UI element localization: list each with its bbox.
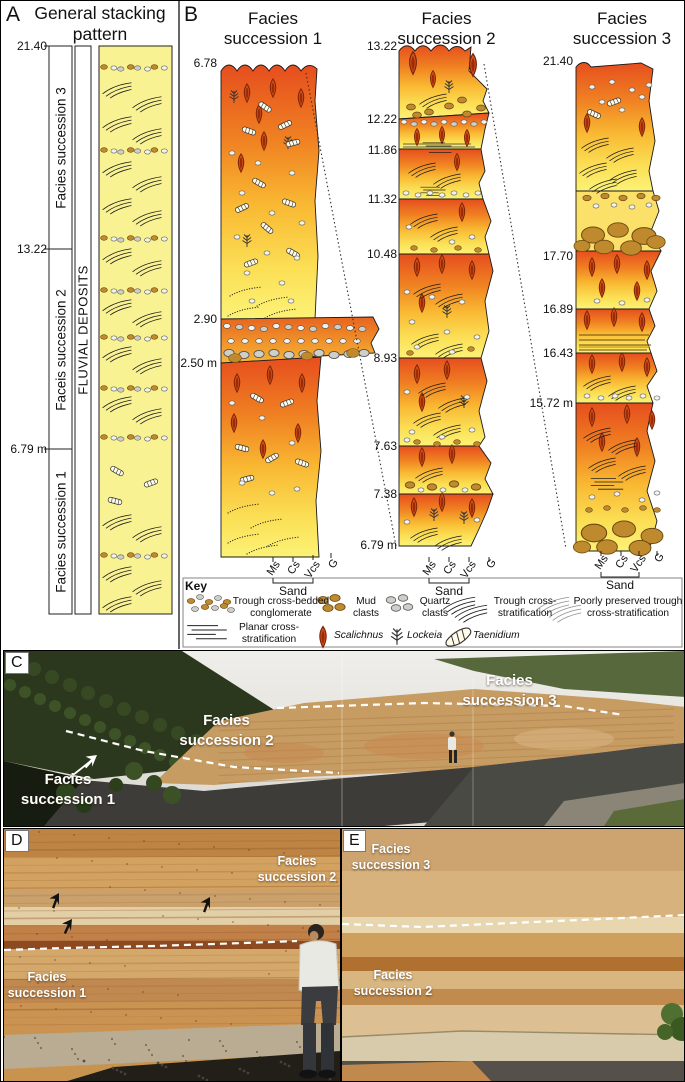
annotation-facies-succession-2: Facies succession 2 <box>164 711 289 750</box>
annotation-facies-succession-1: Facies succession 1 <box>4 969 90 1002</box>
depth-label: 21.40 <box>529 54 573 68</box>
key-taenidium-label: Taenidium <box>473 630 543 642</box>
annotation-facies-succession-2: Facies succession 2 <box>344 967 442 1000</box>
key-mud-clasts-label: Mud clasts <box>344 596 388 619</box>
succession-3-label: Facies succession 3 <box>54 87 69 209</box>
depth-label: 8.93 <box>353 351 397 365</box>
figure-root: A General stacking pattern 21.40 13.22 6… <box>0 0 685 1082</box>
depth-tick: 21.40 <box>3 39 47 53</box>
key-trough-label: Trough cross-stratification <box>487 596 563 619</box>
succession-2-label: Faceis succession 2 <box>54 289 69 411</box>
succession2-title: Facies succession 2 <box>389 9 504 49</box>
strat-diagram <box>1 1 685 649</box>
key-title: Key <box>185 579 207 593</box>
key-poor-trough-label: Poorly preserved trough cross-stratifica… <box>571 596 685 619</box>
succession1-title: Facies succession 1 <box>213 9 333 49</box>
depth-label: 6.79 m <box>353 538 397 552</box>
axis-group-sand: Sand <box>600 578 640 592</box>
panel-c-letter: C <box>5 652 29 674</box>
annotation-facies-succession-2: Facies succession 2 <box>254 853 340 886</box>
key-scalichnus-label: Scalichnus <box>334 630 404 642</box>
depth-label: 7.63 <box>353 439 397 453</box>
depth-label: 11.32 <box>353 192 397 206</box>
depth-label: 15.72 m <box>529 396 573 410</box>
depth-tick: 13.22 <box>3 242 47 256</box>
panel-d-letter: D <box>5 830 29 852</box>
depth-label: 7.38 <box>353 487 397 501</box>
key-planar-label: Planar cross-stratification <box>234 622 304 645</box>
panel-a-letter: A <box>6 3 20 27</box>
key-quartz-clasts-label: Quartz clasts <box>411 596 459 619</box>
depth-label: 2.90 <box>173 312 217 326</box>
succession-1-label: Facies succession 1 <box>54 471 69 593</box>
succession3-title: Facies succession 3 <box>563 9 681 49</box>
depth-label: 10.48 <box>353 247 397 261</box>
depth-label: 16.89 <box>529 302 573 316</box>
panel-e-photo: Facies succession 3 Facies succession 2 <box>341 828 685 1082</box>
depth-label: 11.86 <box>353 143 397 157</box>
annotation-facies-succession-3: Facies succession 3 <box>452 671 567 710</box>
panel-d-photo: Facies succession 2 Facies succession 1 <box>3 828 341 1082</box>
fluvial-deposits-label: FLUVIAL DEPOSITS <box>76 265 91 395</box>
depth-label: 16.43 <box>529 346 573 360</box>
depth-label: 13.22 <box>353 39 397 53</box>
key-lockeia-label: Lockeia <box>407 630 467 642</box>
panel-b-letter: B <box>184 3 198 27</box>
panel-e-letter: E <box>343 830 366 852</box>
depth-label: 6.78 <box>173 56 217 70</box>
depth-label: 17.70 <box>529 249 573 263</box>
annotation-facies-succession-1: Facies succession 1 <box>4 770 132 809</box>
depth-label: 2.50 m <box>173 356 217 370</box>
key-conglomerate-label: Trough cross-bedded conglomerate <box>232 596 330 619</box>
depth-label: 12.22 <box>353 112 397 126</box>
depth-tick: 6.79 m <box>3 442 47 456</box>
panel-c-photo: Facies succession 1 Facies succession 2 … <box>3 650 685 827</box>
